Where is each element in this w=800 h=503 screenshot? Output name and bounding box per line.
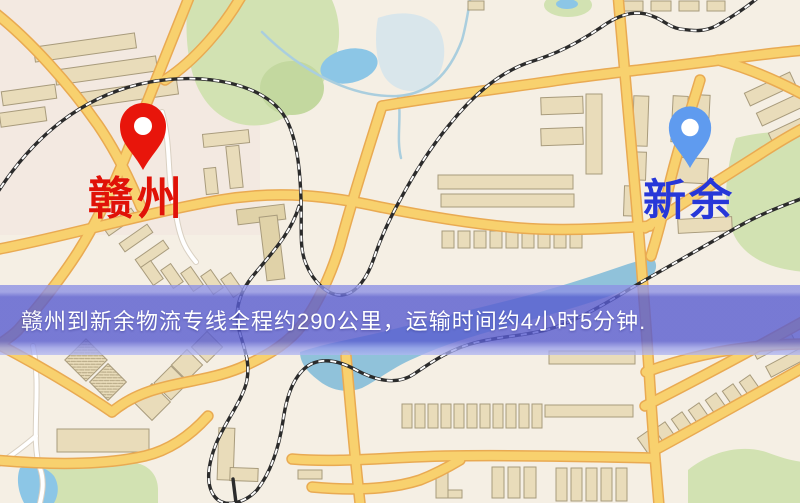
route-info-banner: 赣州到新余物流专线全程约290公里，运输时间约4小时5分钟. bbox=[0, 285, 800, 355]
route-info-text: 赣州到新余物流专线全程约290公里，运输时间约4小时5分钟. bbox=[0, 304, 646, 336]
origin-city-label: 赣州 bbox=[88, 177, 186, 222]
destination-city-label: 新余 bbox=[643, 180, 735, 223]
map-screenshot: 赣州 新余 赣州到新余物流专线全程约290公里，运输时间约4小时5分钟. bbox=[0, 0, 800, 503]
map-canvas bbox=[0, 0, 800, 503]
